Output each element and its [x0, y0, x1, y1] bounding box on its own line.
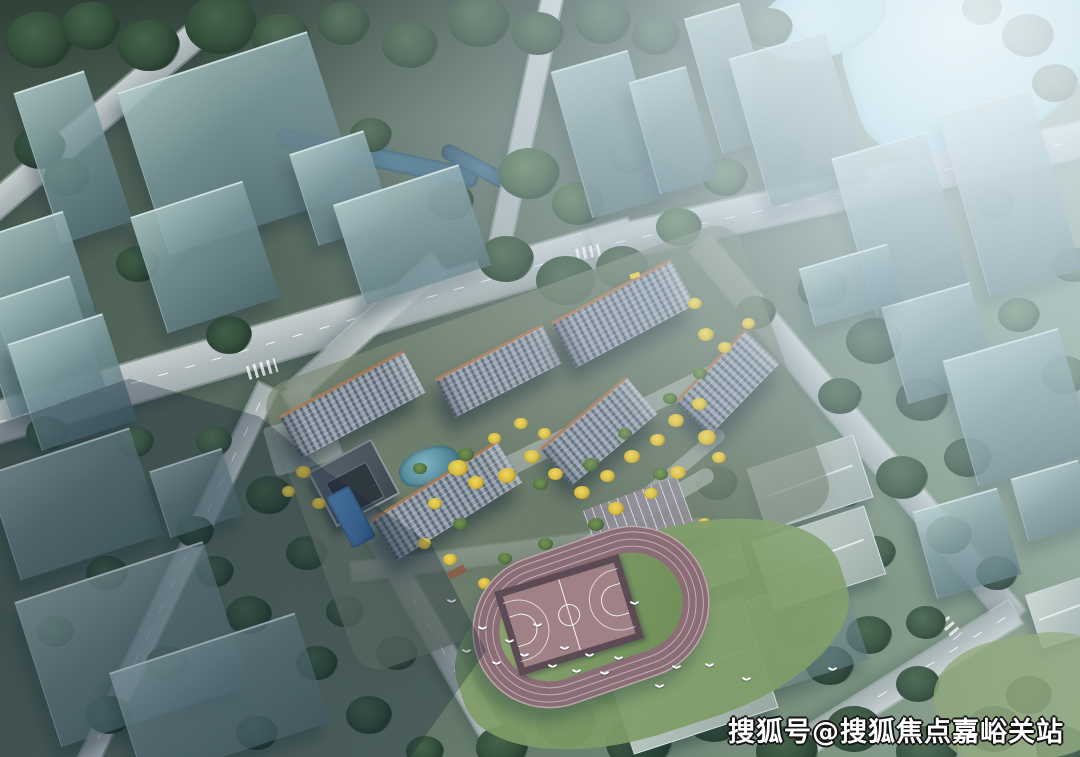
aerial-render-scene: 搜狐号@搜狐焦点嘉峪关站: [0, 0, 1080, 757]
sun-glow: [0, 0, 1080, 757]
watermark-text: 搜狐号@搜狐焦点嘉峪关站: [728, 710, 1064, 749]
